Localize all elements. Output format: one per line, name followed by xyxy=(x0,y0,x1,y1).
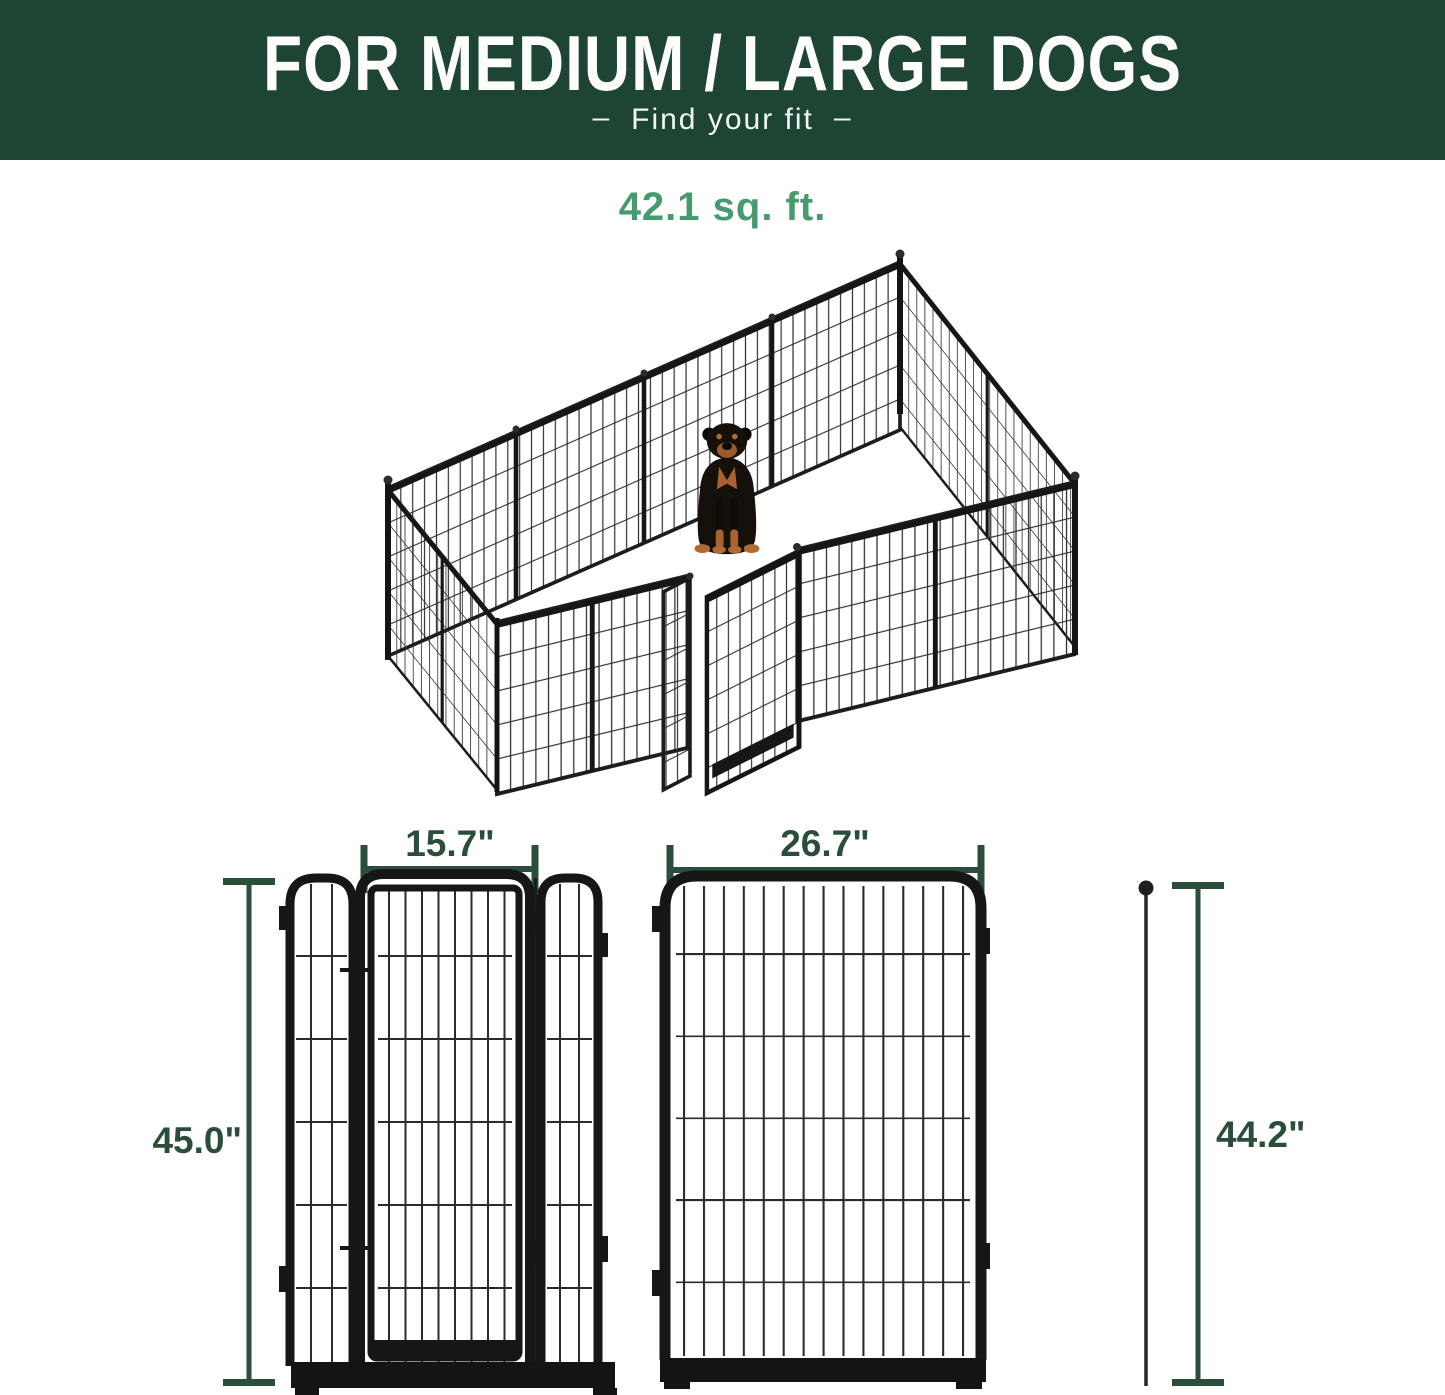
wide-panel-diagram xyxy=(652,876,990,1389)
pen-gap-side-panel xyxy=(663,578,690,790)
pen-cap-sphere xyxy=(384,476,393,485)
door-panel-diagram xyxy=(279,874,617,1395)
header-banner: FOR MEDIUM / LARGE DOGS –Find your fit– xyxy=(0,0,1445,160)
pen-front-wall-right xyxy=(797,482,1074,721)
dimension-panel-height: 44.2" xyxy=(1172,882,1306,1386)
dimension-door-height: 45.0" xyxy=(152,878,275,1386)
page-title: FOR MEDIUM / LARGE DOGS xyxy=(0,18,1445,108)
pen-cap-sphere xyxy=(769,314,776,321)
pen-cap-sphere xyxy=(896,250,905,259)
pen-cap-sphere xyxy=(641,370,648,377)
subtitle-right-dash: – xyxy=(834,101,853,135)
panel-width-label: 26.7" xyxy=(780,823,870,864)
ground-stake xyxy=(1139,881,1154,1387)
pen-open-door xyxy=(707,551,799,793)
pen-cap-sphere xyxy=(793,543,801,551)
dimension-diagrams: 15.7" 26.7" 45.0" 44.2" xyxy=(100,790,1345,1395)
subtitle-left-dash: – xyxy=(592,101,611,135)
subtitle: –Find your fit– xyxy=(0,103,1445,137)
playpen-illustration xyxy=(330,235,1140,800)
pen-cap-sphere xyxy=(513,426,520,433)
pen-cap-sphere xyxy=(687,573,694,580)
subtitle-text: Find your fit xyxy=(631,103,814,136)
dimension-door-width: 15.7" xyxy=(364,823,535,893)
door-height-label: 45.0" xyxy=(152,1120,242,1161)
area-size-label: 42.1 sq. ft. xyxy=(0,185,1445,230)
dimension-panel-width: 26.7" xyxy=(670,823,981,893)
pen-front-wall-left xyxy=(497,576,687,794)
panel-height-label: 44.2" xyxy=(1216,1114,1306,1155)
door-width-label: 15.7" xyxy=(405,823,495,864)
pen-cap-sphere xyxy=(1071,472,1080,481)
